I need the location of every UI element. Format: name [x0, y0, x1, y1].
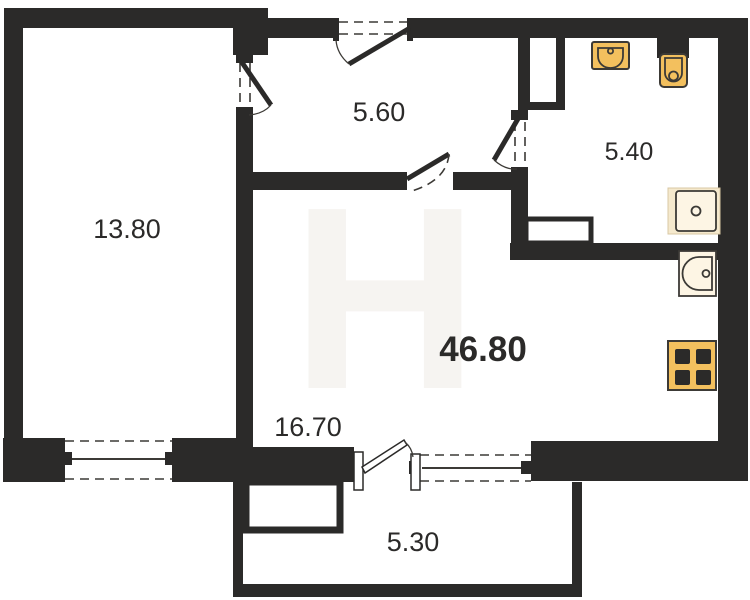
wall-bottom-left-a — [3, 438, 65, 482]
window-stub-left — [63, 452, 72, 465]
area-label-balcony: 5.30 — [387, 527, 440, 557]
wall-top-left — [4, 8, 268, 28]
burner — [675, 370, 690, 385]
wall-right — [718, 18, 748, 481]
floor-plan-drawing: Н — [0, 0, 750, 600]
toilet-icon — [657, 37, 689, 87]
shaft-wall-right — [556, 38, 565, 110]
door-jamb-left — [354, 452, 363, 490]
wall-bottom-left-b — [172, 438, 237, 482]
partition-hall-south-right — [453, 172, 512, 190]
burner — [675, 349, 690, 364]
partition-bedroom-stub-top — [236, 50, 253, 63]
area-label-hallway: 5.60 — [353, 97, 406, 127]
wall-top-hall-right — [413, 18, 518, 38]
washing-machine-icon — [668, 188, 720, 234]
balcony-box — [246, 482, 340, 530]
wall-bottom-center — [237, 447, 354, 482]
floor-plan-page: Н — [0, 0, 750, 600]
burner — [696, 370, 711, 385]
wall-top-bathroom — [518, 18, 748, 38]
window-stub-right — [165, 452, 174, 465]
burner — [696, 349, 711, 364]
area-label-bathroom: 5.40 — [605, 138, 654, 166]
developer-watermark: Н — [291, 154, 479, 444]
balcony-wall-bottom — [233, 584, 582, 597]
bath-sink-icon — [592, 42, 629, 69]
window-stub-right — [521, 461, 531, 474]
shaft-wall-left — [518, 38, 530, 110]
door-jamb-right — [411, 454, 420, 490]
wall-bottom-right — [531, 441, 748, 481]
balcony-wall-right — [572, 482, 582, 597]
partition-hall-south-left — [248, 172, 407, 190]
area-label-kitchen-zone: 16.70 — [274, 412, 342, 442]
wall-top-step — [233, 8, 268, 55]
area-label-living-kitchen: 46.80 — [439, 330, 527, 369]
kitchen-sink-icon — [679, 251, 716, 296]
stove-icon — [668, 341, 716, 390]
washer-body — [676, 191, 716, 231]
shaft-wall-cap — [518, 102, 565, 110]
entry-door-stub-left — [333, 18, 339, 41]
balcony-wall-left — [233, 482, 243, 597]
wall-left — [4, 8, 23, 482]
partition-bedroom — [236, 107, 253, 447]
area-label-bedroom: 13.80 — [93, 214, 161, 244]
wall-top-hall-left — [268, 18, 333, 38]
duct-box — [526, 219, 591, 243]
